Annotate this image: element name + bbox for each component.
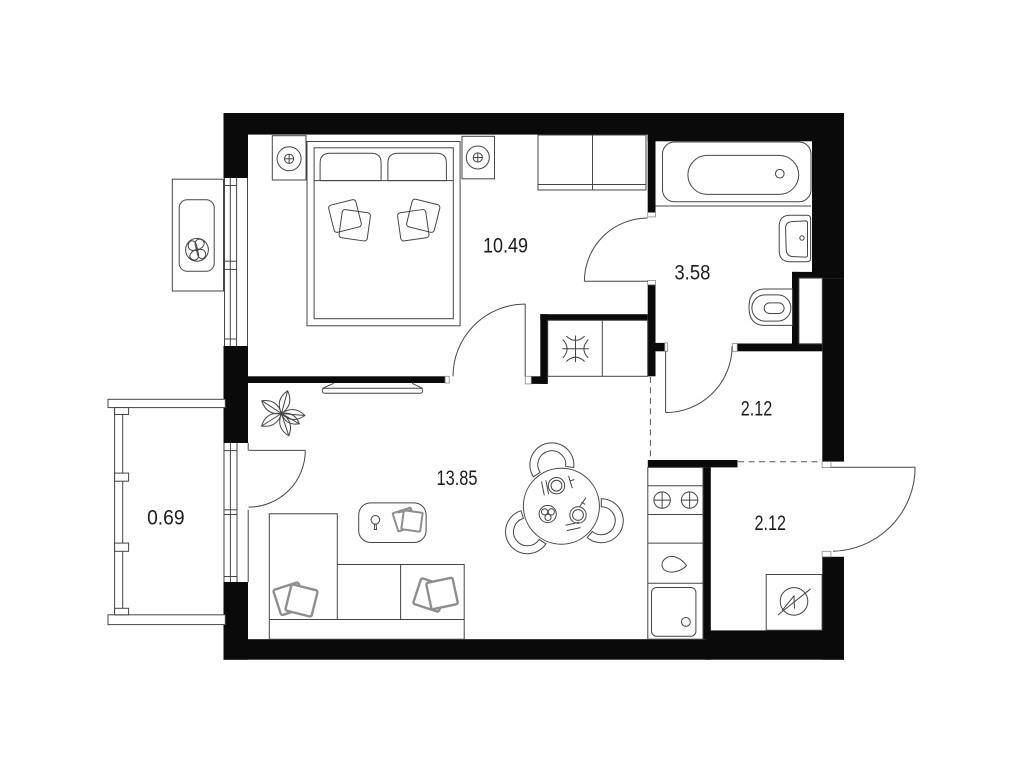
svg-text:3.58: 3.58 [674,262,710,285]
svg-text:2.12: 2.12 [755,512,787,535]
svg-text:2.12: 2.12 [741,397,773,420]
svg-text:0.69: 0.69 [147,507,185,530]
svg-text:10.49: 10.49 [483,235,528,258]
svg-text:13.85: 13.85 [437,467,478,490]
